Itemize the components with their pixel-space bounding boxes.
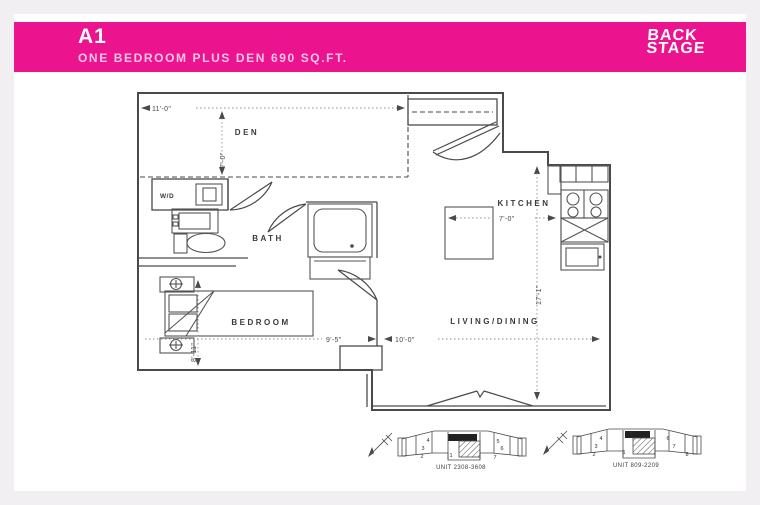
page: A1 ONE BEDROOM PLUS DEN 690 SQ.FT. BACK … [0, 0, 760, 505]
living-length-dim: 17'-1" [536, 285, 543, 305]
living-dining-label: LIVING/DINING [450, 317, 539, 326]
unit-number: 7 [493, 455, 496, 461]
stove [561, 190, 608, 218]
bedroom-depth-dim: 8'-11" [191, 343, 198, 362]
keyplan-1: 4 5 3 2 1 6 7 UNIT 2308-3608 [368, 431, 526, 471]
unit-number: 7 [672, 444, 675, 450]
keyplan-1-unit-range: UNIT 2308-3608 [436, 465, 486, 471]
unit-number: 2 [592, 452, 595, 458]
unit-number: 4 [599, 436, 602, 442]
dimension-bedroom-width: 9'-5" [145, 336, 376, 344]
unit-number: 6 [666, 436, 669, 442]
unit-number: 8 [685, 452, 688, 458]
dimension-den-depth: 7'-0" [219, 111, 227, 175]
bedroom-width-dim: 9'-5" [326, 337, 342, 344]
highlighted-unit [633, 438, 655, 454]
nightstand-top [160, 277, 194, 292]
kitchen-sink [561, 218, 608, 242]
kitchen-island [445, 207, 493, 259]
kitchen-width-dim: 7'-0" [499, 216, 515, 223]
wd-label: W/D [160, 193, 174, 200]
bathtub [308, 204, 372, 279]
dimension-den-width: 11'-0" [141, 105, 405, 113]
outer-walls [138, 93, 610, 410]
dimension-bedroom-depth: 8'-11" [191, 280, 201, 366]
living-width-dim: 10'-0" [395, 337, 415, 344]
floorplan-drawing: 11'-0" 7'-0" 9'-5" 8'-11" 10'-0" [0, 0, 760, 505]
den-partition [140, 95, 408, 177]
keyplan-2: 5 4 6 3 7 2 1 8 UNIT 809-2209 [543, 429, 701, 469]
unit-number: 6 [500, 446, 503, 452]
dimension-kitchen-width: 7'-0" [448, 215, 556, 223]
bed [165, 291, 313, 336]
den-label: DEN [235, 128, 259, 137]
unit-number: 1 [622, 450, 625, 456]
den-door [230, 182, 272, 210]
bath-label: BATH [252, 234, 284, 243]
fridge [561, 244, 604, 270]
bedroom-door [338, 270, 377, 300]
entry-door [433, 122, 500, 160]
unit-number: 3 [594, 444, 597, 450]
den-width-dim: 11'-0" [152, 106, 171, 113]
north-arrow-icon [368, 433, 392, 457]
highlighted-unit [459, 441, 480, 457]
kitchen-label: KITCHEN [497, 199, 550, 208]
unit-number: 5 [629, 432, 632, 438]
vanity-sink [172, 209, 218, 233]
dimension-living-width: 10'-0" [384, 336, 600, 344]
elevator-core [448, 434, 477, 441]
keyplan-2-unit-range: UNIT 809-2209 [613, 463, 659, 469]
den-depth-dim: 7'-0" [220, 152, 227, 168]
bedroom-label: BEDROOM [231, 318, 290, 327]
unit-number: 1 [449, 453, 452, 459]
unit-number: 4 [426, 438, 429, 444]
toilet [174, 234, 225, 254]
balcony-doors [427, 391, 533, 406]
unit-number: 3 [421, 446, 424, 452]
unit-number: 2 [420, 454, 423, 460]
entry-closet [408, 99, 497, 125]
interior-walls [138, 179, 382, 370]
bath-door [268, 204, 306, 232]
nightstand-bottom [160, 338, 194, 353]
north-arrow-icon [543, 431, 567, 455]
unit-number: 5 [496, 439, 499, 445]
